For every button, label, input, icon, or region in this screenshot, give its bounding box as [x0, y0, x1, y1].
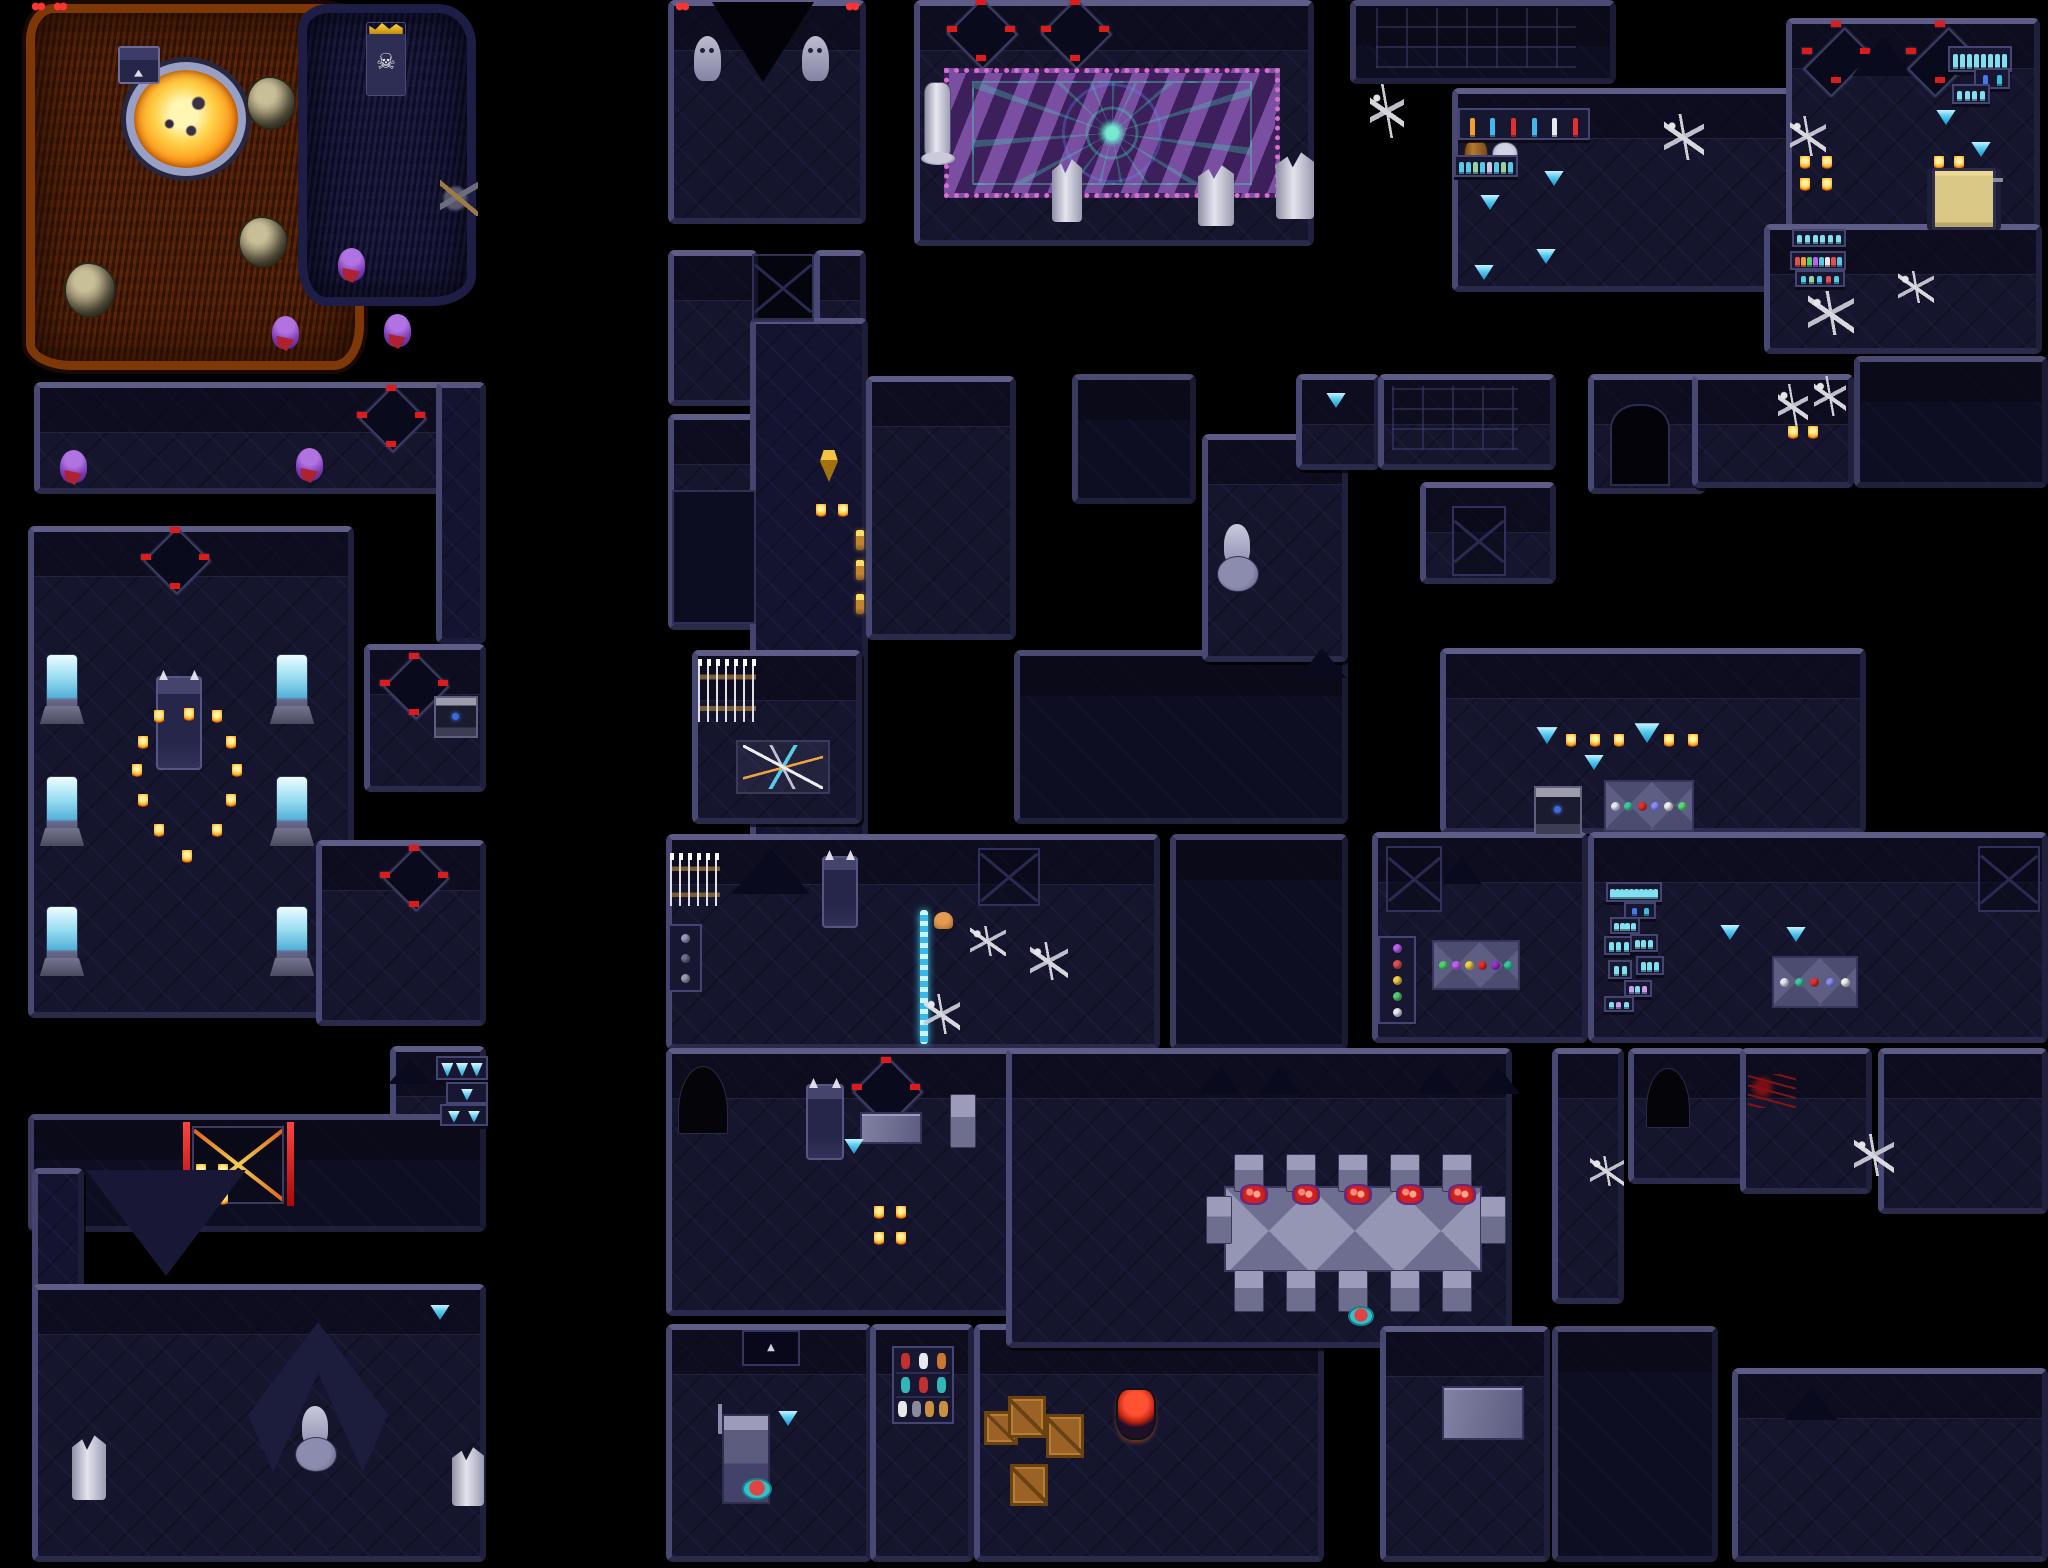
ward-diamond — [1812, 24, 1860, 96]
potion-stand[interactable] — [1630, 934, 1658, 952]
skeleton-room-se — [1878, 1048, 2048, 1214]
shelf-row — [896, 1398, 950, 1420]
shelf-bottle[interactable] — [1625, 923, 1630, 931]
gargoyle-imp[interactable] — [272, 316, 299, 349]
table-item[interactable] — [1638, 802, 1647, 811]
ritual-candle — [1614, 734, 1624, 749]
shelf-bottle[interactable] — [1624, 942, 1629, 952]
shelf-bottle[interactable] — [1641, 962, 1646, 972]
shelf-bottle[interactable] — [1974, 54, 1979, 69]
cross-decor — [1386, 846, 1442, 912]
wall-torch — [856, 530, 864, 550]
table-item[interactable] — [1780, 978, 1789, 987]
potion-stand[interactable] — [1636, 956, 1664, 975]
potion-stand[interactable] — [1604, 996, 1634, 1012]
wall-shelf[interactable] — [668, 924, 702, 992]
ritual-candle — [212, 710, 222, 725]
table-item[interactable] — [1439, 961, 1448, 970]
bed[interactable] — [672, 490, 756, 624]
shelf-item[interactable] — [937, 1353, 946, 1369]
table-item[interactable] — [1452, 961, 1461, 970]
gargoyle-imp[interactable] — [338, 248, 365, 281]
block-pattern — [1392, 386, 1518, 450]
shelf-bottle[interactable] — [1809, 276, 1814, 284]
shelf-bottle[interactable] — [1620, 923, 1625, 931]
shelf-bottle[interactable] — [1953, 54, 1958, 69]
storage-chest[interactable] — [434, 696, 478, 738]
ritual-candle — [212, 824, 222, 839]
block-pattern — [1376, 8, 1576, 68]
ice-pillar — [276, 654, 308, 720]
weapon-rack[interactable] — [670, 858, 720, 906]
ritual-candle — [1566, 734, 1576, 749]
skeleton-king-on-throne — [366, 22, 406, 96]
ice-pillar — [46, 906, 78, 972]
food-plate[interactable] — [1240, 1184, 1268, 1205]
shelf-gem[interactable] — [471, 1063, 483, 1077]
table-item[interactable] — [1465, 961, 1474, 970]
shelf-bottle[interactable] — [1629, 986, 1634, 994]
shelf-bottle[interactable] — [1797, 235, 1802, 244]
maze-d — [1854, 356, 2048, 488]
crate[interactable] — [1046, 1414, 1084, 1458]
shelf-bottle[interactable] — [1615, 889, 1620, 899]
shelf-item[interactable] — [901, 1377, 910, 1393]
skeleton-remains — [1814, 376, 1846, 416]
shelf-bottle[interactable] — [1967, 54, 1972, 69]
food-bowl[interactable] — [1348, 1306, 1374, 1326]
guard-hall — [666, 834, 1160, 1050]
shelf-bottle[interactable] — [1972, 91, 1977, 101]
shelf-bottle[interactable] — [1807, 257, 1812, 267]
shelf-bottle[interactable] — [1836, 235, 1841, 244]
skeleton-remains — [1030, 942, 1068, 980]
weapon-rack[interactable] — [698, 664, 756, 722]
shelf-bottle[interactable] — [1828, 235, 1833, 244]
shelf-bottle[interactable] — [1801, 276, 1806, 284]
ritual-candle — [896, 1206, 906, 1221]
cross-decor — [1452, 506, 1506, 576]
shelf-bottle[interactable] — [1552, 118, 1557, 137]
shelf-bottle[interactable] — [1980, 91, 1985, 101]
shelf-bottle[interactable] — [1609, 1002, 1614, 1009]
gate-bar — [287, 1122, 294, 1206]
ward-diamond — [362, 388, 420, 446]
shelf-gem[interactable] — [456, 1063, 468, 1077]
blood-stains — [1748, 1074, 1796, 1108]
food-shelf[interactable] — [892, 1346, 954, 1424]
ward-diamond — [856, 1060, 916, 1120]
shelf-bottle[interactable] — [1997, 75, 2002, 86]
shelf-bottle[interactable] — [1609, 942, 1614, 952]
ritual-candle — [232, 764, 242, 779]
map-stage — [0, 0, 2048, 1568]
gem-shelf[interactable] — [436, 1056, 488, 1080]
enchanting-table[interactable] — [1604, 780, 1694, 832]
shelf-gem[interactable] — [461, 1089, 473, 1101]
shelf-item[interactable] — [919, 1353, 928, 1369]
ward-diamond — [950, 2, 1012, 62]
shelf-bottle[interactable] — [1624, 1002, 1629, 1009]
ritual-candle — [1822, 178, 1832, 193]
treasure-chest[interactable] — [118, 46, 160, 84]
shelf-bottle[interactable] — [1995, 54, 2000, 69]
table-item[interactable] — [1393, 976, 1402, 985]
shelf-bottle[interactable] — [1616, 1002, 1621, 1009]
chair — [1442, 1270, 1472, 1312]
spirit-statue — [294, 1406, 336, 1472]
maze-s2 — [1552, 1326, 1718, 1562]
gargoyle-imp[interactable] — [296, 448, 323, 481]
table-item[interactable] — [681, 974, 690, 983]
east-annex — [1170, 834, 1348, 1050]
shelf-bottle[interactable] — [1487, 162, 1492, 174]
shelf-bottle[interactable] — [1647, 962, 1652, 972]
blood-room — [1740, 1048, 1872, 1194]
shelf-bottle[interactable] — [1826, 276, 1831, 284]
ice-pillar — [46, 654, 78, 720]
shelf-bottle[interactable] — [1614, 923, 1619, 931]
potion-shelf[interactable] — [1795, 270, 1845, 287]
food-bowl[interactable] — [742, 1478, 772, 1500]
skeleton-remains — [1778, 384, 1808, 428]
shelf-bottle[interactable] — [1813, 257, 1818, 267]
shelf-bottle[interactable] — [1459, 162, 1464, 174]
south-east-hall — [1732, 1368, 2048, 1562]
shelf-bottle[interactable] — [1494, 162, 1499, 174]
ritual-candle — [132, 764, 142, 779]
chair — [1286, 1270, 1316, 1312]
cross-decor — [978, 848, 1040, 906]
crate[interactable] — [1010, 1464, 1048, 1506]
potion-shelf[interactable] — [1606, 882, 1662, 902]
shelf-item[interactable] — [912, 1401, 921, 1417]
audience-throne[interactable] — [806, 1084, 844, 1160]
table-item[interactable] — [1393, 960, 1402, 969]
table-item[interactable] — [681, 934, 690, 943]
shelf-item[interactable] — [901, 1353, 910, 1369]
closet-alcove[interactable] — [742, 1330, 800, 1366]
shelf-bottle[interactable] — [1795, 257, 1800, 267]
ritual-candle — [896, 1232, 906, 1247]
ritual-candle — [874, 1232, 884, 1247]
potion-shelf[interactable] — [1792, 229, 1846, 247]
skeleton-remains — [1590, 1156, 1624, 1186]
table-item[interactable] — [1393, 992, 1402, 1001]
shelf-bottle[interactable] — [1960, 54, 1965, 69]
dark-doorway[interactable] — [1610, 404, 1670, 486]
guard-throne[interactable] — [822, 856, 858, 928]
cooking-brazier[interactable] — [1116, 1388, 1156, 1440]
food-plate[interactable] — [1292, 1184, 1320, 1205]
cross-door — [752, 254, 814, 322]
chair — [1234, 1270, 1264, 1312]
edge-marker — [676, 2, 689, 11]
skeleton-remains — [1854, 1134, 1894, 1176]
shelf-bottle[interactable] — [1616, 942, 1621, 952]
ritual-candle — [1822, 156, 1832, 171]
table-item[interactable] — [1611, 802, 1620, 811]
potion-shelf[interactable] — [1454, 155, 1518, 177]
potion-stand[interactable] — [1624, 980, 1652, 997]
shelf-bottle[interactable] — [1635, 986, 1640, 994]
cross-decor — [1978, 846, 2040, 912]
torture-rack[interactable] — [1932, 168, 1996, 230]
nook-room — [1072, 374, 1196, 504]
shelf-row — [896, 1374, 950, 1398]
table-item[interactable] — [1491, 961, 1500, 970]
wall-torch — [856, 594, 864, 614]
shelf-bottle[interactable] — [1635, 940, 1640, 949]
skeleton-remains — [1370, 84, 1404, 138]
shelf-bottle[interactable] — [1981, 54, 1986, 69]
shelf-bottle[interactable] — [1632, 908, 1637, 916]
potion-shelf[interactable] — [1610, 917, 1640, 934]
shelf-item[interactable] — [937, 1377, 946, 1393]
shelf-bottle[interactable] — [1819, 257, 1824, 267]
shelf-bottle[interactable] — [1532, 118, 1537, 137]
table-item[interactable] — [1795, 978, 1804, 987]
ice-pillar — [46, 776, 78, 842]
cell-west — [668, 250, 758, 406]
shelf-bottle[interactable] — [1644, 908, 1649, 916]
skeleton-remains — [970, 926, 1006, 956]
gargoyle-imp[interactable] — [384, 314, 411, 347]
ritual-candle — [226, 794, 236, 809]
table-item[interactable] — [1678, 802, 1687, 811]
shelf-bottle[interactable] — [1813, 235, 1818, 244]
shelf-item[interactable] — [925, 1401, 934, 1417]
ritual-candle — [184, 708, 194, 723]
table-item[interactable] — [1624, 802, 1633, 811]
ritual-candle — [1688, 734, 1698, 749]
gargoyle-imp[interactable] — [60, 450, 87, 483]
shelf-bottle[interactable] — [1642, 986, 1647, 994]
ritual-candle — [816, 504, 826, 519]
strongbox[interactable] — [1534, 786, 1582, 836]
edge-marker — [32, 2, 45, 11]
skeleton-remains — [924, 994, 960, 1034]
shelf-bottle[interactable] — [1988, 54, 1993, 69]
table-room-s — [1380, 1326, 1550, 1562]
ghost-statue — [694, 36, 721, 81]
shelf-gem[interactable] — [441, 1063, 453, 1077]
shelf-bottle[interactable] — [1834, 276, 1839, 284]
shelf-bottle[interactable] — [1573, 118, 1578, 137]
crate[interactable] — [1008, 1396, 1046, 1438]
shelf-bottle[interactable] — [1957, 91, 1962, 101]
reagent-shelf[interactable] — [1378, 936, 1416, 1024]
ward-diamond — [1044, 2, 1106, 62]
shelf-bottle[interactable] — [1831, 257, 1836, 267]
ice-pillar — [276, 776, 308, 842]
shelf-bottle[interactable] — [1501, 162, 1506, 174]
stone-table — [860, 1112, 922, 1144]
wall-torch — [856, 560, 864, 580]
ritual-candle — [1800, 178, 1810, 193]
shelf-bottle[interactable] — [1473, 162, 1478, 174]
ritual-candle — [1590, 734, 1600, 749]
shelf-bottle[interactable] — [1653, 889, 1658, 899]
ritual-candle — [1808, 426, 1818, 441]
table-item[interactable] — [1393, 944, 1402, 953]
shelf-row — [896, 1350, 950, 1374]
table-item[interactable] — [1841, 978, 1850, 987]
shelf-bottle[interactable] — [1631, 923, 1636, 931]
mid-east-room — [866, 376, 1016, 640]
ritual-candle — [138, 736, 148, 751]
ritual-candle — [1800, 156, 1810, 171]
table-item[interactable] — [1826, 978, 1835, 987]
table-item[interactable] — [1664, 802, 1673, 811]
potion-shelf[interactable] — [1790, 251, 1846, 270]
shelf-bottle[interactable] — [1805, 235, 1810, 244]
shelf-gem[interactable] — [468, 1111, 480, 1123]
chair — [1480, 1196, 1506, 1244]
table-item[interactable] — [1651, 802, 1660, 811]
shelf-bottle[interactable] — [1622, 966, 1627, 976]
shelf-gem[interactable] — [448, 1111, 460, 1123]
gem-nook — [1296, 374, 1380, 470]
chair — [1206, 1196, 1232, 1244]
table-item[interactable] — [1393, 1008, 1402, 1017]
food-plate[interactable] — [1448, 1184, 1476, 1205]
ghost-statue — [802, 36, 829, 81]
bone-debris — [440, 172, 478, 216]
food-plate[interactable] — [1396, 1184, 1424, 1205]
shelf-bottle[interactable] — [1817, 276, 1822, 284]
shelf-bottle[interactable] — [1801, 257, 1806, 267]
ritual-candle — [154, 824, 164, 839]
potion-shelf[interactable] — [1458, 108, 1590, 140]
gem-shelf[interactable] — [446, 1082, 488, 1104]
chair — [950, 1094, 976, 1148]
shelf-bottle[interactable] — [1837, 257, 1842, 267]
table-item[interactable] — [681, 954, 690, 963]
skeleton-remains — [1808, 291, 1854, 335]
shelf-bottle[interactable] — [2002, 54, 2007, 69]
east-wall-strip — [436, 382, 486, 644]
stone-table — [1442, 1386, 1524, 1440]
ritual-candle — [226, 736, 236, 751]
shelf-bottle[interactable] — [1648, 940, 1653, 949]
ritual-candle — [182, 850, 192, 865]
table-item[interactable] — [1478, 961, 1487, 970]
ward-diamond — [146, 530, 204, 588]
column — [924, 82, 951, 160]
skeleton-remains — [1898, 271, 1934, 303]
ward-diamond — [386, 848, 442, 904]
weapons-table[interactable] — [736, 740, 830, 794]
ritual-candle — [1788, 426, 1798, 441]
helmet[interactable] — [934, 912, 953, 929]
shelf-bottle[interactable] — [1490, 118, 1495, 137]
shelf-bottle[interactable] — [1511, 118, 1516, 137]
skeleton-remains — [1790, 116, 1826, 156]
table-item[interactable] — [1810, 978, 1819, 987]
storeroom — [974, 1324, 1324, 1562]
ritual-candle — [874, 1206, 884, 1221]
cell-east — [814, 250, 866, 324]
shelf-bottle[interactable] — [1820, 235, 1825, 244]
food-plate[interactable] — [1344, 1184, 1372, 1205]
edge-marker — [54, 2, 67, 11]
ritual-candle — [154, 710, 164, 725]
shelf-bottle[interactable] — [1639, 889, 1644, 899]
edge-marker — [846, 2, 859, 11]
shelf-bottle[interactable] — [1614, 966, 1619, 976]
dark-hall-east — [1014, 650, 1348, 824]
shelf-bottle[interactable] — [1965, 91, 1970, 101]
shelf-bottle[interactable] — [1654, 962, 1659, 972]
shelf-item[interactable] — [898, 1401, 907, 1417]
shelf-bottle[interactable] — [1825, 257, 1830, 267]
ritual-candle — [1664, 734, 1674, 749]
shelf-bottle[interactable] — [1466, 162, 1471, 174]
shelf-item[interactable] — [939, 1401, 948, 1417]
shelf-bottle[interactable] — [1470, 118, 1475, 137]
ice-pillar — [276, 906, 308, 972]
potion-stand[interactable] — [1608, 960, 1632, 979]
spirit-statue — [1216, 524, 1258, 592]
shelf-bottle[interactable] — [1641, 940, 1646, 949]
shelf-bottle[interactable] — [1480, 162, 1485, 174]
skeleton-remains — [1664, 114, 1704, 160]
shelf-item[interactable] — [919, 1377, 928, 1393]
shelf-bottle[interactable] — [1508, 162, 1513, 174]
potion-shelf[interactable] — [1952, 84, 1990, 104]
table-item[interactable] — [1504, 961, 1513, 970]
chair — [1390, 1270, 1420, 1312]
potion-table[interactable] — [1432, 940, 1520, 990]
ritual-candle — [838, 504, 848, 519]
gem-shelf[interactable] — [440, 1104, 488, 1126]
enchanting-table[interactable] — [1772, 956, 1858, 1008]
ritual-candle — [138, 794, 148, 809]
